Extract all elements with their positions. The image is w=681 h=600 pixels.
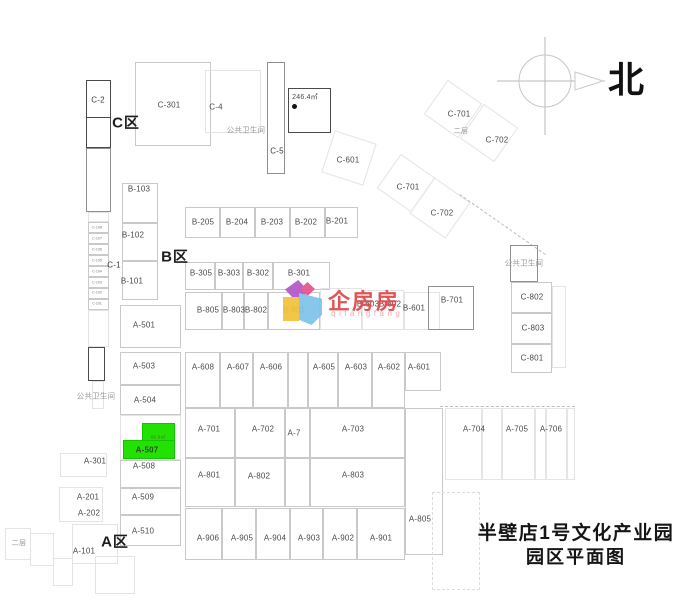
building-outline [235,458,285,507]
label-c-701-lower: C-701 [397,183,420,192]
label-b-301: B-301 [288,269,310,278]
second-floor-top-label: 二层 [454,126,468,136]
public-toilet-right-label: 公共卫生间 [505,258,544,269]
label-a-605: A-605 [313,363,335,372]
building-outline [220,352,253,408]
label-a-704: A-704 [463,425,485,434]
label-a-101: A-101 [73,547,95,556]
zone-b-label: B区 [161,246,189,267]
label-c-106: C-106 [92,248,102,252]
label-a-705: A-705 [506,425,528,434]
label-a-608: A-608 [192,363,214,372]
building-outline [86,148,111,212]
highlight-unit-label: A-507 [136,446,159,455]
plan-title-line2: 园区平面图 [470,546,681,569]
label-b-803: B-803 [223,306,245,315]
label-a-301: A-301 [84,457,106,466]
building-outline [308,352,338,408]
label-b-802: B-802 [245,306,267,315]
label-a-202: A-202 [78,509,100,518]
compass-icon [497,37,681,142]
label-c-2: C-2 [91,96,105,105]
label-c-301: C-301 [158,101,181,110]
label-a-802: A-802 [248,472,270,481]
label-c-702-lower: C-702 [431,209,454,218]
label-a-510: A-510 [132,527,154,536]
label-c-101: C-101 [92,302,102,306]
zone-c-label: C区 [112,112,140,133]
label-c-102: C-102 [92,291,102,295]
label-c-1: C-1 [107,261,121,270]
label-a-7: A-7 [287,429,300,438]
plan-title: 半壁店1号文化产业园 园区平面图 [470,522,681,568]
label-b-103: B-103 [128,185,150,194]
building-outline [185,458,235,507]
highlight-area-label: 66.9㎡ [151,434,166,441]
area-246-label: 246.4㎡ [292,92,318,102]
label-c-801: C-801 [521,354,544,363]
toilet-left-outline [88,347,105,381]
label-c-701: C-701 [448,110,471,119]
label-a-503: A-503 [133,362,155,371]
building-outline [482,408,502,480]
label-c-107: C-107 [92,237,102,241]
label-a-703: A-703 [342,425,364,434]
label-a-903: A-903 [298,534,320,543]
label-a-901: A-901 [370,534,392,543]
building-outline [288,352,308,408]
zone-a-label: A区 [101,531,129,552]
label-b-303: B-303 [218,269,240,278]
logo-blue-face [299,293,322,325]
label-b-101: B-101 [121,277,143,286]
label-a-501: A-501 [133,321,155,330]
label-a-803: A-803 [342,471,364,480]
building-outline [185,352,220,408]
b-102-outline [122,223,158,261]
building-outline [372,352,405,408]
label-a-603: A-603 [345,363,367,372]
label-b-204: B-204 [226,218,248,227]
building-outline [30,533,54,566]
building-outline [88,310,109,347]
label-c-5: C-5 [270,147,284,156]
label-b-202: B-202 [295,218,317,227]
building-outline [445,408,482,480]
building-outline [88,212,109,222]
site-plan-canvas: 北 企房房 qifangfang 半壁店1号文化产业园 园区平面图 C-2C区C… [0,0,681,600]
label-a-801: A-801 [198,471,220,480]
building-outline [567,408,575,480]
label-a-902: A-902 [332,534,354,543]
label-c-105: C-105 [92,259,102,263]
building-outline [338,352,372,408]
label-a-504: A-504 [134,396,156,405]
label-a-906: A-906 [197,534,219,543]
qifangfang-logo-icon [283,280,325,330]
label-c-803: C-803 [522,324,545,333]
label-a-201: A-201 [77,493,99,502]
label-c-103: C-103 [92,281,102,285]
watermark: 企房房 qifangfang [283,280,443,332]
label-a-601: A-601 [408,363,430,372]
c-5-outline [267,62,285,174]
building-outline [285,458,310,507]
label-b-205: B-205 [192,218,214,227]
label-a-904: A-904 [264,534,286,543]
label-c-108: C-108 [92,226,102,230]
public-toilet-top-label: 公共卫生间 [227,125,266,136]
building-outline [253,352,288,408]
building-outline [546,408,567,480]
label-a-602: A-602 [378,363,400,372]
label-c-4: C-4 [209,103,223,112]
label-b-302: B-302 [247,269,269,278]
label-a-508: A-508 [133,462,155,471]
building-outline [53,558,73,586]
label-a-701: A-701 [198,425,220,434]
area-246-dot [292,104,297,109]
building-outline [95,556,135,594]
building-outline [552,286,566,368]
building-outline [310,458,405,507]
label-c-702: C-702 [486,136,509,145]
building-outline [440,406,575,407]
second-floor-bottom-label: 二层 [12,538,26,548]
label-c-802: C-802 [521,293,544,302]
north-label: 北 [608,62,644,98]
label-a-606: A-606 [260,363,282,372]
label-b-305: B-305 [190,269,212,278]
logo-yellow-face [283,297,299,321]
label-b-201: B-201 [326,217,348,226]
label-b-203: B-203 [261,218,283,227]
label-a-702: A-702 [252,425,274,434]
public-toilet-left-label: 公共卫生间 [77,391,116,402]
building-outline [535,408,546,480]
floor-plan-page: { "title": {"line1": "半壁店1号文化产业园", "line… [0,0,681,600]
label-b-805: B-805 [197,306,219,315]
label-b-701: B-701 [441,296,463,305]
label-a-706: A-706 [540,425,562,434]
label-a-905: A-905 [231,534,253,543]
label-a-509: A-509 [132,493,154,502]
watermark-latin-text: qifangfang [331,309,403,318]
a-601-outline [405,352,441,391]
label-a-607: A-607 [227,363,249,372]
label-b-102: B-102 [122,231,144,240]
label-c-104: C-104 [92,270,102,274]
label-c-601: C-601 [337,156,360,165]
building-outline [502,408,535,480]
plan-title-line1: 半壁店1号文化产业园 [470,522,681,546]
label-a-805: A-805 [409,515,431,524]
